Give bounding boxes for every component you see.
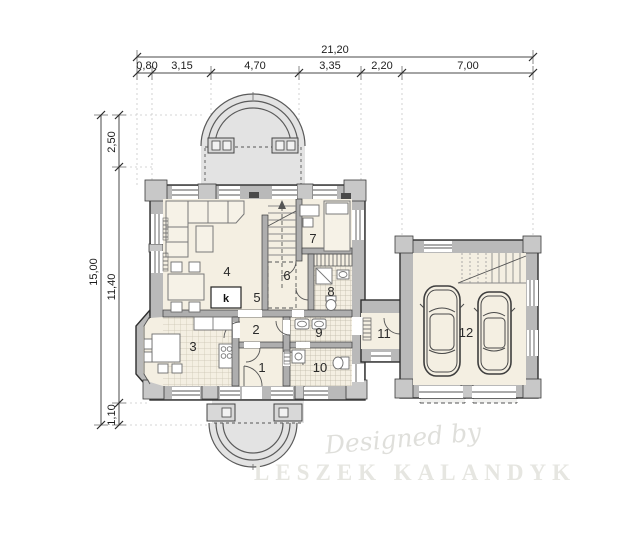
dim-top-seg-4: 2,20 (371, 60, 392, 72)
dim-top-seg-3: 3,35 (319, 60, 340, 72)
room-label-7: 7 (309, 231, 316, 246)
dim-top-total: 21,20 (321, 44, 349, 56)
room-label-11: 11 (377, 326, 391, 341)
fireplace-label: k (223, 293, 230, 305)
room-label-10: 10 (313, 360, 327, 375)
dim-left-seg-1: 11,40 (106, 274, 118, 301)
dim-left-seg-0: 2,50 (106, 131, 118, 152)
room-label-5: 5 (253, 290, 260, 305)
dim-left-seg-2: 1,10 (106, 404, 118, 425)
room-label-2: 2 (252, 322, 259, 337)
room-label-8: 8 (327, 284, 334, 299)
dim-top-seg-0: 0,80 (136, 60, 157, 72)
top-dimension-lines: 21,20 0,80 3,15 4,70 3,35 2,20 7,00 (133, 44, 537, 80)
floor-plan-drawing: 21,20 0,80 3,15 4,70 3,35 2,20 7,00 15,0… (0, 0, 638, 556)
dim-top-seg-5: 7,00 (457, 60, 478, 72)
toilet-10 (333, 357, 343, 369)
top-terrace (201, 92, 305, 185)
kitchen-table (152, 334, 180, 362)
toilet-8 (326, 300, 336, 311)
left-dimension-lines: 15,00 2,50 11,40 1,10 (88, 111, 126, 429)
room-label-9: 9 (315, 325, 322, 340)
room-label-12: 12 (459, 325, 473, 340)
dim-left-total: 15,00 (88, 258, 100, 286)
room-label-6: 6 (283, 268, 290, 283)
dim-top-seg-1: 3,15 (171, 60, 192, 72)
floor-plan-page: 21,20 0,80 3,15 4,70 3,35 2,20 7,00 15,0… (0, 0, 638, 556)
coffee-table (196, 226, 213, 252)
dining-table (168, 274, 204, 300)
room-label-4: 4 (223, 264, 230, 279)
desk (300, 205, 319, 216)
bottom-terrace (207, 400, 304, 470)
dim-top-seg-2: 4,70 (244, 60, 265, 72)
entrance-door-opening (242, 387, 262, 399)
washer (292, 350, 305, 363)
wardrobe (314, 254, 352, 266)
room-label-1: 1 (258, 360, 265, 375)
room-label-3: 3 (189, 339, 196, 354)
